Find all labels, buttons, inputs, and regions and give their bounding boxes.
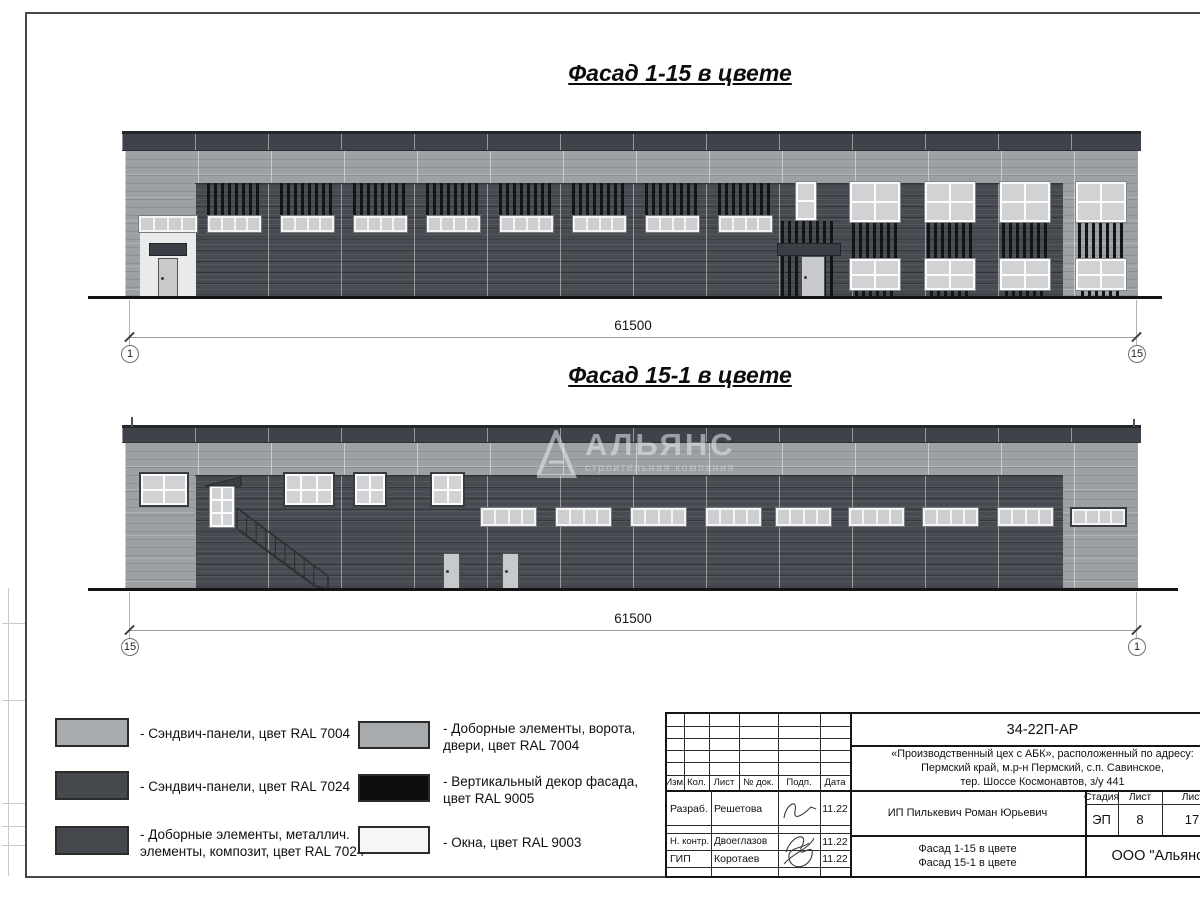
legend-label: - Сэндвич-панели, цвет RAL 7024 [140, 778, 350, 795]
window-pane [660, 510, 671, 524]
window-pane [588, 218, 599, 230]
axis-marker-1: 1 [1128, 638, 1146, 656]
strip-window [207, 215, 262, 233]
project-description: «Производственный цех с АБК», расположен… [850, 745, 1200, 790]
extension-line [1136, 592, 1137, 642]
window-pane [601, 218, 612, 230]
extension-line [129, 300, 130, 350]
window-pane [357, 476, 369, 489]
window-pane [1112, 511, 1123, 523]
row-date: 11.22 [820, 850, 850, 867]
strip-window [1070, 507, 1127, 527]
window-pane [747, 218, 758, 230]
company-name: ООО "Альянс" [1085, 835, 1200, 876]
facade-2-title: Фасад 15-1 в цвете [420, 362, 940, 389]
window-pane [633, 510, 644, 524]
entrance-canopy [149, 243, 187, 256]
facade-door [502, 553, 519, 589]
window-pane [735, 510, 746, 524]
strip-window [775, 507, 832, 527]
window-pane [236, 218, 247, 230]
window-pane [891, 510, 902, 524]
strip-window [555, 507, 612, 527]
window-pane [183, 218, 195, 230]
window-pane [210, 218, 221, 230]
window-pane [571, 510, 582, 524]
window-pane [791, 510, 802, 524]
window-pane [805, 510, 816, 524]
row-name: Двоеглазов [711, 833, 778, 850]
strip-window [572, 215, 627, 233]
window-pane [938, 510, 949, 524]
strip-window [997, 507, 1054, 527]
strip-window [630, 507, 687, 527]
window [1075, 258, 1127, 291]
window-pane [528, 218, 539, 230]
facade-roof [122, 131, 1141, 151]
legend-swatch-doors-ral7004 [358, 721, 430, 749]
window-pane [575, 218, 586, 230]
extension-line [1136, 300, 1137, 350]
window-pane [1074, 511, 1085, 523]
stage-value: ЭП [1085, 804, 1118, 835]
col-list: Лист [709, 775, 739, 790]
window-pane [927, 184, 949, 201]
window-pane [296, 218, 307, 230]
window-pane [143, 491, 163, 504]
window-pane [248, 218, 259, 230]
window-pane [798, 202, 814, 218]
window-pane [852, 184, 874, 201]
window-pane [523, 510, 534, 524]
window-pane [1102, 184, 1124, 201]
entrance-door [158, 258, 178, 298]
strip-window [426, 215, 481, 233]
row-date: 11.22 [820, 792, 850, 825]
window [849, 258, 901, 291]
col-kol: Кол. [684, 775, 709, 790]
window-pane [371, 491, 383, 504]
window-pane [434, 476, 447, 489]
window-pane [429, 218, 440, 230]
window-pane [1100, 511, 1111, 523]
window-pane [449, 476, 462, 489]
strip-window [138, 215, 198, 233]
window-pane [1002, 184, 1024, 201]
window [924, 258, 976, 291]
col-ndok: № док. [739, 775, 778, 790]
window-pane [141, 218, 153, 230]
row-role: Н. контр. [667, 833, 711, 850]
sheets-value: 17 [1162, 804, 1200, 835]
window-pane [357, 491, 369, 504]
legend-swatch-ral7004 [55, 718, 129, 747]
window-pane [951, 203, 973, 220]
frame-margin-tick [2, 623, 25, 624]
window-pane [708, 510, 719, 524]
window-pane [721, 218, 732, 230]
ground-line [88, 296, 1162, 299]
axis-marker-1: 1 [121, 345, 139, 363]
facade-1-drawing [125, 131, 1138, 298]
window-pane [1002, 203, 1024, 220]
window-pane [169, 218, 181, 230]
row-date: 11.22 [820, 833, 850, 850]
window-pane [748, 510, 759, 524]
window-pane [1078, 203, 1100, 220]
window-pane [155, 218, 167, 230]
window-pane [1026, 203, 1048, 220]
frame-left-border [25, 12, 27, 878]
window-pane [598, 510, 609, 524]
dimension-value: 61500 [560, 318, 706, 333]
window-pane [143, 476, 163, 489]
window-pane [434, 491, 447, 504]
window-pane [502, 218, 513, 230]
legend-swatch-ral9005 [358, 774, 430, 802]
legend-label: - Доборные элементы, ворота, двери, цвет… [443, 720, 635, 754]
window-pane [927, 261, 949, 274]
strip-window [848, 507, 905, 527]
window-pane [878, 510, 889, 524]
window-pane [558, 510, 569, 524]
window-pane [165, 491, 185, 504]
window-pane [876, 184, 898, 201]
signature-marks [778, 792, 820, 876]
window [999, 258, 1051, 291]
window-pane [515, 218, 526, 230]
window-pane [1027, 510, 1038, 524]
facade-2-drawing [125, 425, 1138, 590]
legend-swatch-ral9003 [358, 826, 430, 854]
window-pane [646, 510, 657, 524]
row-name: Коротаев [711, 850, 778, 867]
window-pane [382, 218, 393, 230]
window [353, 472, 387, 507]
window-pane [852, 261, 874, 274]
window-pane [852, 203, 874, 220]
window-pane [1026, 261, 1048, 274]
frame-top-border [25, 12, 1200, 14]
window [139, 472, 189, 507]
window-pane [1102, 261, 1124, 274]
window-pane [455, 218, 466, 230]
window [999, 181, 1051, 223]
strip-window [718, 215, 773, 233]
window-pane [852, 276, 874, 289]
row-role: Разраб. [667, 792, 711, 825]
window-pane [1078, 261, 1100, 274]
strip-window [499, 215, 554, 233]
window-pane [876, 276, 898, 289]
facade-decor-stripes [645, 183, 700, 215]
strip-window [705, 507, 762, 527]
frame-margin-tick [2, 845, 25, 846]
window-pane [467, 218, 478, 230]
window-pane [309, 218, 320, 230]
sheet-value: 8 [1118, 804, 1162, 835]
facade-decor-stripes [207, 183, 262, 215]
window-pane [1102, 203, 1124, 220]
window-pane [952, 510, 963, 524]
ground-line [88, 588, 1178, 591]
dimension-line [130, 630, 1137, 631]
window-pane [369, 218, 380, 230]
facade-decor-stripes [572, 183, 627, 215]
window [924, 181, 976, 223]
window-pane [1102, 276, 1124, 289]
client-name: ИП Пилькевич Роман Юрьевич [850, 790, 1085, 835]
col-data: Дата [820, 775, 850, 790]
window [430, 472, 465, 507]
window-pane [1087, 511, 1098, 523]
window-pane [1013, 510, 1024, 524]
window-pane [734, 218, 745, 230]
frame-margin-line [8, 588, 9, 876]
facade-decor-stripes [927, 223, 973, 258]
window-pane [965, 510, 976, 524]
window-pane [951, 276, 973, 289]
window-pane [449, 491, 462, 504]
window-pane [283, 218, 294, 230]
title-block: Изм. Кол. Лист № док. Подп. Дата 34-22П-… [665, 712, 1200, 878]
sheets-label: Листов [1162, 790, 1200, 804]
window-pane [876, 261, 898, 274]
strip-window [353, 215, 408, 233]
facade-roof [122, 425, 1141, 443]
window-pane [686, 218, 697, 230]
window-pane [851, 510, 862, 524]
window-pane [321, 218, 332, 230]
drawing-sheet: Фасад 1-15 в цвете Фасад 15-1 в цвете АЛ… [0, 0, 1200, 900]
facade-decor-stripes [499, 183, 554, 215]
window-pane [648, 218, 659, 230]
sheet-title: Фасад 1-15 в цвете Фасад 15-1 в цвете [850, 835, 1085, 876]
facade-decor-stripes [1002, 223, 1048, 258]
exterior-stair [201, 470, 341, 595]
facade-decor-stripes [718, 183, 773, 215]
frame-margin-tick [2, 700, 25, 701]
window-pane [661, 218, 672, 230]
window-pane [165, 476, 185, 489]
window-pane [1000, 510, 1011, 524]
window-pane [927, 276, 949, 289]
window-pane [818, 510, 829, 524]
row-name: Решетова [711, 792, 778, 825]
roof-edge-trim [131, 417, 133, 427]
window-pane [442, 218, 453, 230]
strip-window [280, 215, 335, 233]
axis-marker-15: 15 [121, 638, 139, 656]
window-pane [778, 510, 789, 524]
window-pane [798, 184, 814, 200]
extension-line [129, 592, 130, 642]
dimension-value: 61500 [560, 611, 706, 626]
entrance-canopy [777, 243, 841, 256]
window [1075, 181, 1127, 223]
roof-edge-trim [1133, 419, 1135, 427]
window-pane [1026, 184, 1048, 201]
window-pane [674, 218, 685, 230]
facade-1-title: Фасад 1-15 в цвете [420, 60, 940, 87]
window-pane [496, 510, 507, 524]
legend-swatch-ral7024-elements [55, 826, 129, 855]
window-pane [673, 510, 684, 524]
facade-door [443, 553, 460, 589]
window-pane [759, 218, 770, 230]
window-pane [1026, 276, 1048, 289]
frame-margin-tick [2, 803, 25, 804]
sheet-label: Лист [1118, 790, 1162, 804]
window-pane [951, 184, 973, 201]
legend-label: - Вертикальный декор фасада, цвет RAL 90… [443, 773, 638, 807]
window-pane [876, 203, 898, 220]
legend-label: - Сэндвич-панели, цвет RAL 7004 [140, 725, 350, 742]
facade-decor-stripes [426, 183, 481, 215]
window-pane [540, 218, 551, 230]
dimension-line [130, 337, 1137, 338]
window-pane [864, 510, 875, 524]
strip-window [645, 215, 700, 233]
frame-margin-tick [2, 826, 25, 827]
window-pane [483, 510, 494, 524]
window-pane [1040, 510, 1051, 524]
col-izm: Изм. [667, 775, 684, 790]
window-pane [1078, 184, 1100, 201]
window-pane [223, 218, 234, 230]
facade-decor-stripes [852, 223, 898, 258]
window-pane [510, 510, 521, 524]
facade-decor-stripes [1078, 223, 1124, 258]
window-pane [613, 218, 624, 230]
legend-label: - Окна, цвет RAL 9003 [443, 834, 581, 851]
window-pane [1002, 261, 1024, 274]
window-pane [951, 261, 973, 274]
window-pane [1078, 276, 1100, 289]
axis-marker-15: 15 [1128, 345, 1146, 363]
entrance-door [801, 256, 825, 298]
window-pane [925, 510, 936, 524]
doc-code: 34-22П-АР [850, 714, 1200, 745]
stage-label: Стадия [1085, 790, 1118, 804]
window-pane [371, 476, 383, 489]
window [795, 181, 817, 221]
legend-swatch-ral7024 [55, 771, 129, 800]
window-pane [394, 218, 405, 230]
window-pane [585, 510, 596, 524]
row-role: ГИП [667, 850, 711, 867]
facade-decor-stripes [353, 183, 408, 215]
window-pane [1002, 276, 1024, 289]
col-podp: Подп. [778, 775, 820, 790]
strip-window [922, 507, 979, 527]
window-pane [721, 510, 732, 524]
facade-decor-stripes [280, 183, 335, 215]
window-pane [356, 218, 367, 230]
legend-label: - Доборные элементы, металлич. элементы,… [140, 826, 364, 860]
strip-window [480, 507, 537, 527]
window-pane [927, 203, 949, 220]
window [849, 181, 901, 223]
